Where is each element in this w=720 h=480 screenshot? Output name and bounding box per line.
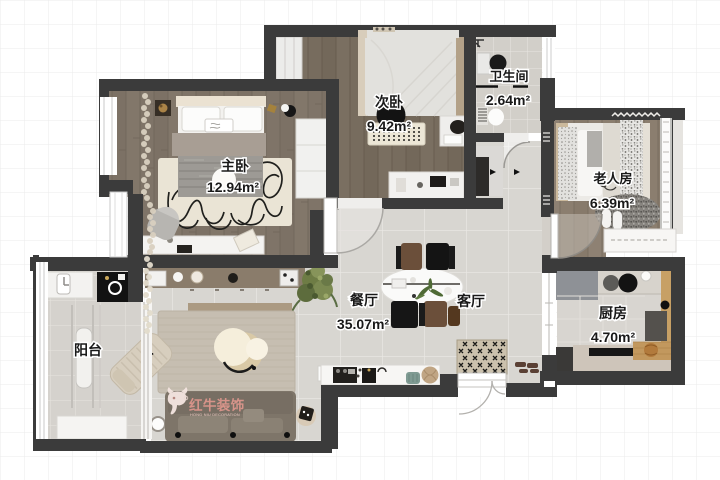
svg-text:餐厅: 餐厅 [349, 292, 378, 308]
svg-text:4.70m²: 4.70m² [591, 329, 636, 345]
svg-text:客厅: 客厅 [456, 293, 485, 309]
svg-text:HONG NIU DECORATION: HONG NIU DECORATION [190, 413, 240, 417]
svg-text:12.94m²: 12.94m² [207, 179, 259, 195]
svg-text:卫生间: 卫生间 [489, 69, 528, 84]
svg-text:2.64m²: 2.64m² [486, 92, 531, 108]
svg-text:6.39m²: 6.39m² [590, 195, 635, 211]
svg-text:红牛装饰: 红牛装饰 [189, 397, 245, 413]
svg-text:阳台: 阳台 [74, 342, 102, 358]
svg-text:35.07m²: 35.07m² [337, 316, 389, 332]
svg-text:9.42m²: 9.42m² [367, 118, 412, 134]
svg-text:厨房: 厨房 [599, 305, 627, 321]
svg-text:主卧: 主卧 [221, 158, 249, 174]
svg-text:老人房: 老人房 [592, 171, 632, 186]
svg-text:次卧: 次卧 [375, 94, 403, 110]
